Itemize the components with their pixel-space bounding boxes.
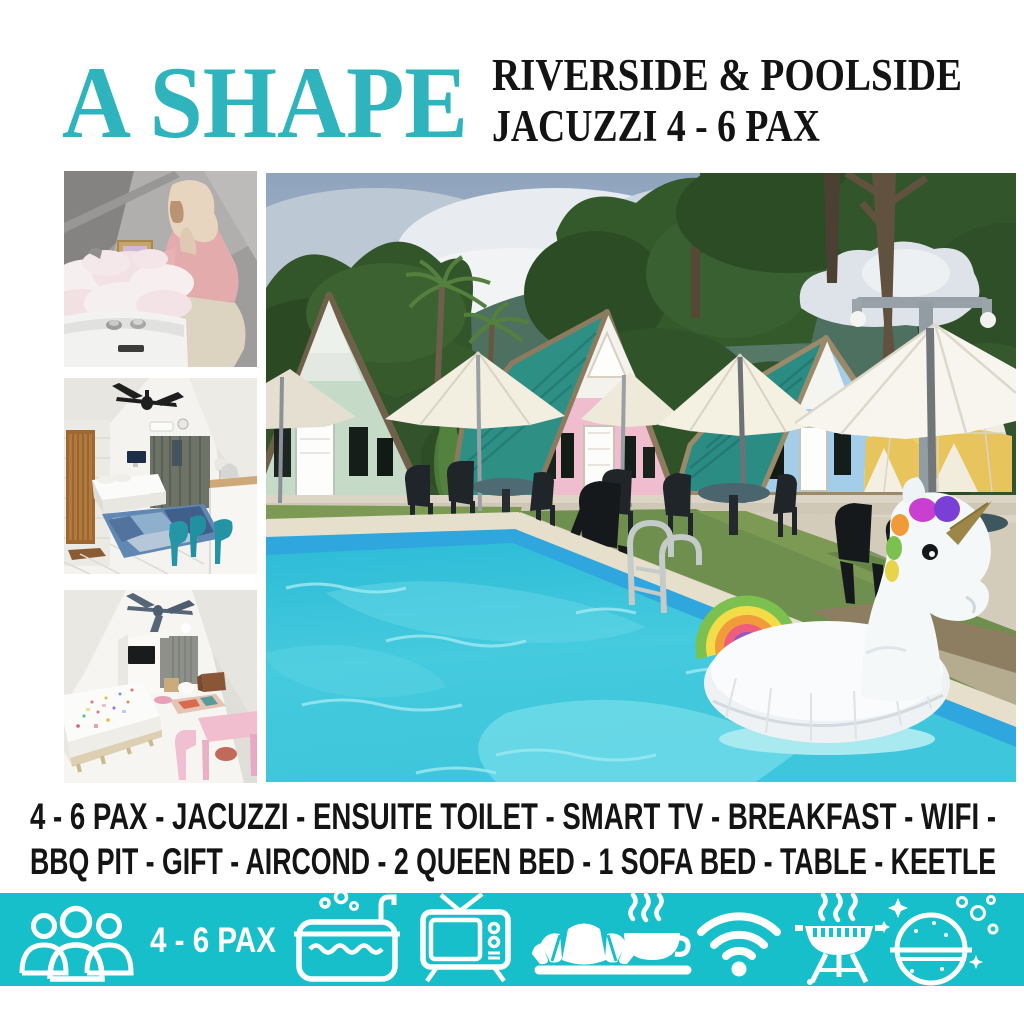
svg-text:RIVERSIDE & POOLSIDE: RIVERSIDE & POOLSIDE [492, 50, 962, 100]
svg-text:4 - 6 PAX: 4 - 6 PAX [150, 921, 277, 960]
svg-text:A SHAPE: A SHAPE [62, 46, 468, 160]
svg-text:BBQ PIT - GIFT - AIRCOND - 2 Q: BBQ PIT - GIFT - AIRCOND - 2 QUEEN BED -… [30, 841, 996, 882]
svg-text:4 - 6 PAX - JACUZZI - ENSUITE: 4 - 6 PAX - JACUZZI - ENSUITE TOILET - S… [30, 796, 996, 837]
svg-text:JACUZZI 4 - 6 PAX: JACUZZI 4 - 6 PAX [492, 101, 820, 151]
